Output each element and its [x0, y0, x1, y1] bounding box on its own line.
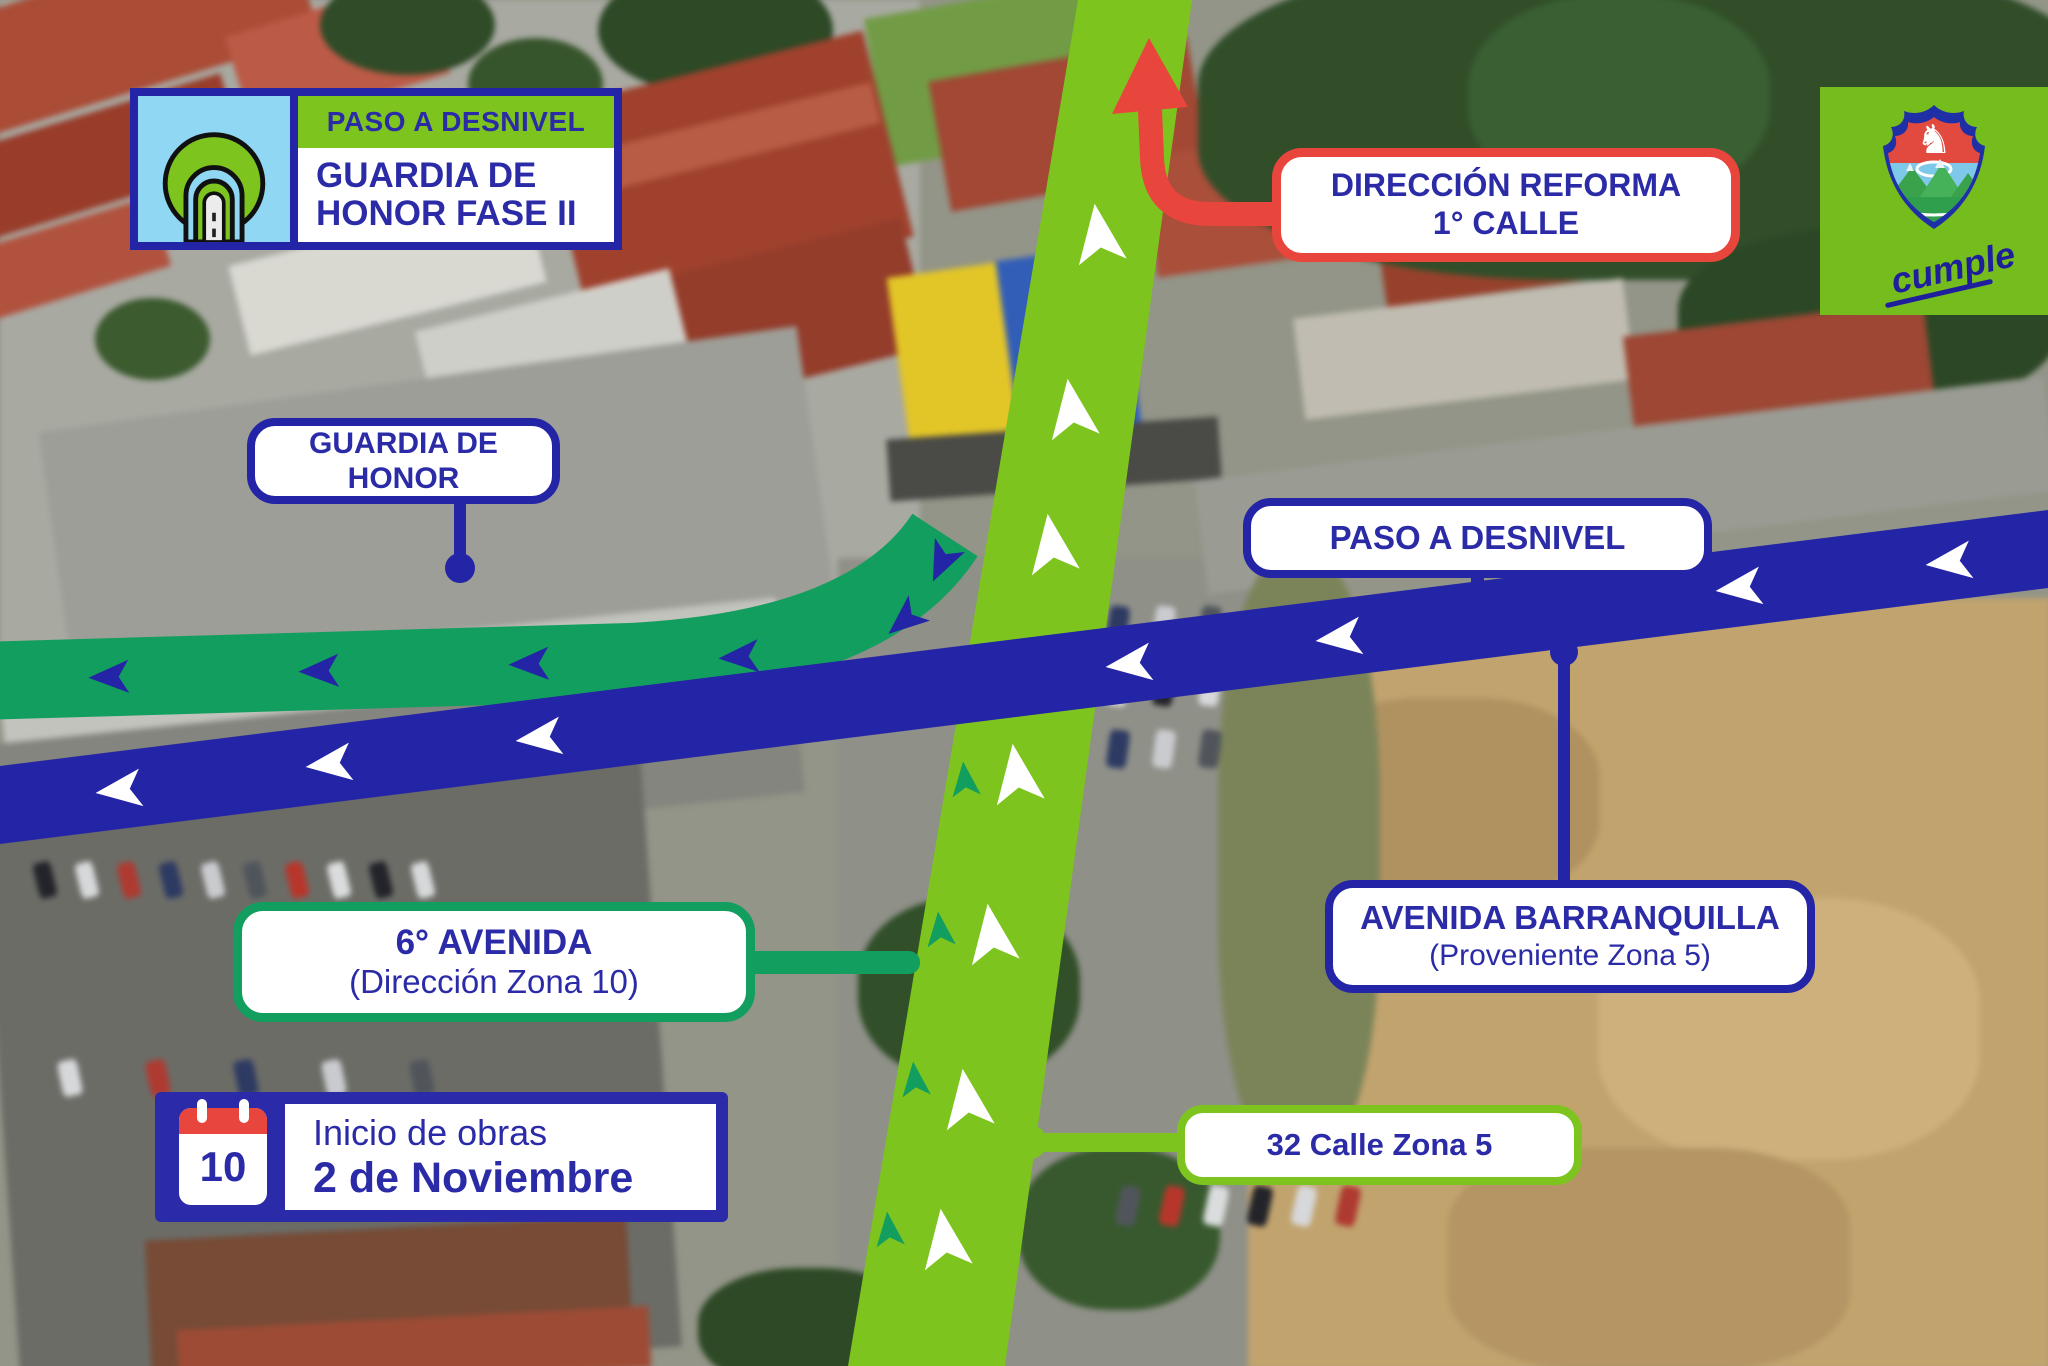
calendar-icon-header: [179, 1108, 267, 1134]
paso-connector-line: [1471, 574, 1484, 632]
sexta-line2: (Dirección Zona 10): [349, 963, 639, 1002]
start-notice-panel: Inicio de obras 2 de Noviembre: [285, 1104, 716, 1210]
start-of-works-notice: 10 Inicio de obras 2 de Noviembre: [155, 1092, 728, 1222]
badge-title-line1: GUARDIA DE: [316, 157, 614, 196]
callout-guardia-de-honor: GUARDIA DE HONOR: [247, 418, 560, 504]
callout-sexta-avenida: 6° AVENIDA (Dirección Zona 10): [233, 902, 755, 1022]
infographic-canvas: PASO A DESNIVEL GUARDIA DE HONOR FASE II…: [0, 0, 2048, 1366]
start-notice-line2: 2 de Noviembre: [313, 1154, 716, 1203]
calle32-text: 32 Calle Zona 5: [1267, 1127, 1493, 1164]
calle32-connector-line: [1024, 1133, 1180, 1152]
municipality-logo: ♞ cumple: [1820, 87, 2048, 315]
paso-text: PASO A DESNIVEL: [1330, 519, 1626, 558]
svg-text:♞: ♞: [1916, 117, 1952, 163]
callout-paso-a-desnivel: PASO A DESNIVEL: [1243, 498, 1712, 578]
guardia-connector-dot: [445, 553, 475, 583]
calendar-icon: 10: [179, 1108, 267, 1205]
municipality-shield-icon: ♞: [1874, 101, 1994, 233]
direccion-line1: DIRECCIÓN REFORMA: [1331, 167, 1681, 205]
barranquilla-line1: AVENIDA BARRANQUILLA: [1360, 899, 1780, 938]
badge-header: PASO A DESNIVEL: [298, 96, 614, 148]
direccion-line2: 1° CALLE: [1433, 205, 1579, 243]
sexta-line1: 6° AVENIDA: [396, 922, 593, 963]
start-notice-line1: Inicio de obras: [313, 1112, 716, 1154]
guardia-connector-line: [454, 500, 466, 558]
badge-title: GUARDIA DE HONOR FASE II: [298, 148, 614, 242]
sexta-avenida-connector-line: [742, 951, 920, 974]
badge-title-line2: HONOR FASE II: [316, 195, 614, 234]
barranquilla-connector-line: [1558, 648, 1570, 884]
calendar-day: 10: [179, 1134, 267, 1200]
teal-road: [0, 535, 945, 681]
callout-guardia-text: GUARDIA DE HONOR: [255, 426, 552, 497]
calendar-icon-peg: [239, 1099, 249, 1123]
tunnel-icon: [138, 96, 298, 242]
callout-avenida-barranquilla: AVENIDA BARRANQUILLA (Proveniente Zona 5…: [1325, 880, 1815, 993]
project-title-badge: PASO A DESNIVEL GUARDIA DE HONOR FASE II: [130, 88, 622, 250]
calle32-connector-dot: [1013, 1125, 1047, 1159]
callout-calle-32: 32 Calle Zona 5: [1177, 1105, 1582, 1185]
barranquilla-line2: (Proveniente Zona 5): [1429, 938, 1711, 973]
calendar-icon-peg: [197, 1099, 207, 1123]
callout-direccion-reforma: DIRECCIÓN REFORMA 1° CALLE: [1272, 148, 1740, 262]
